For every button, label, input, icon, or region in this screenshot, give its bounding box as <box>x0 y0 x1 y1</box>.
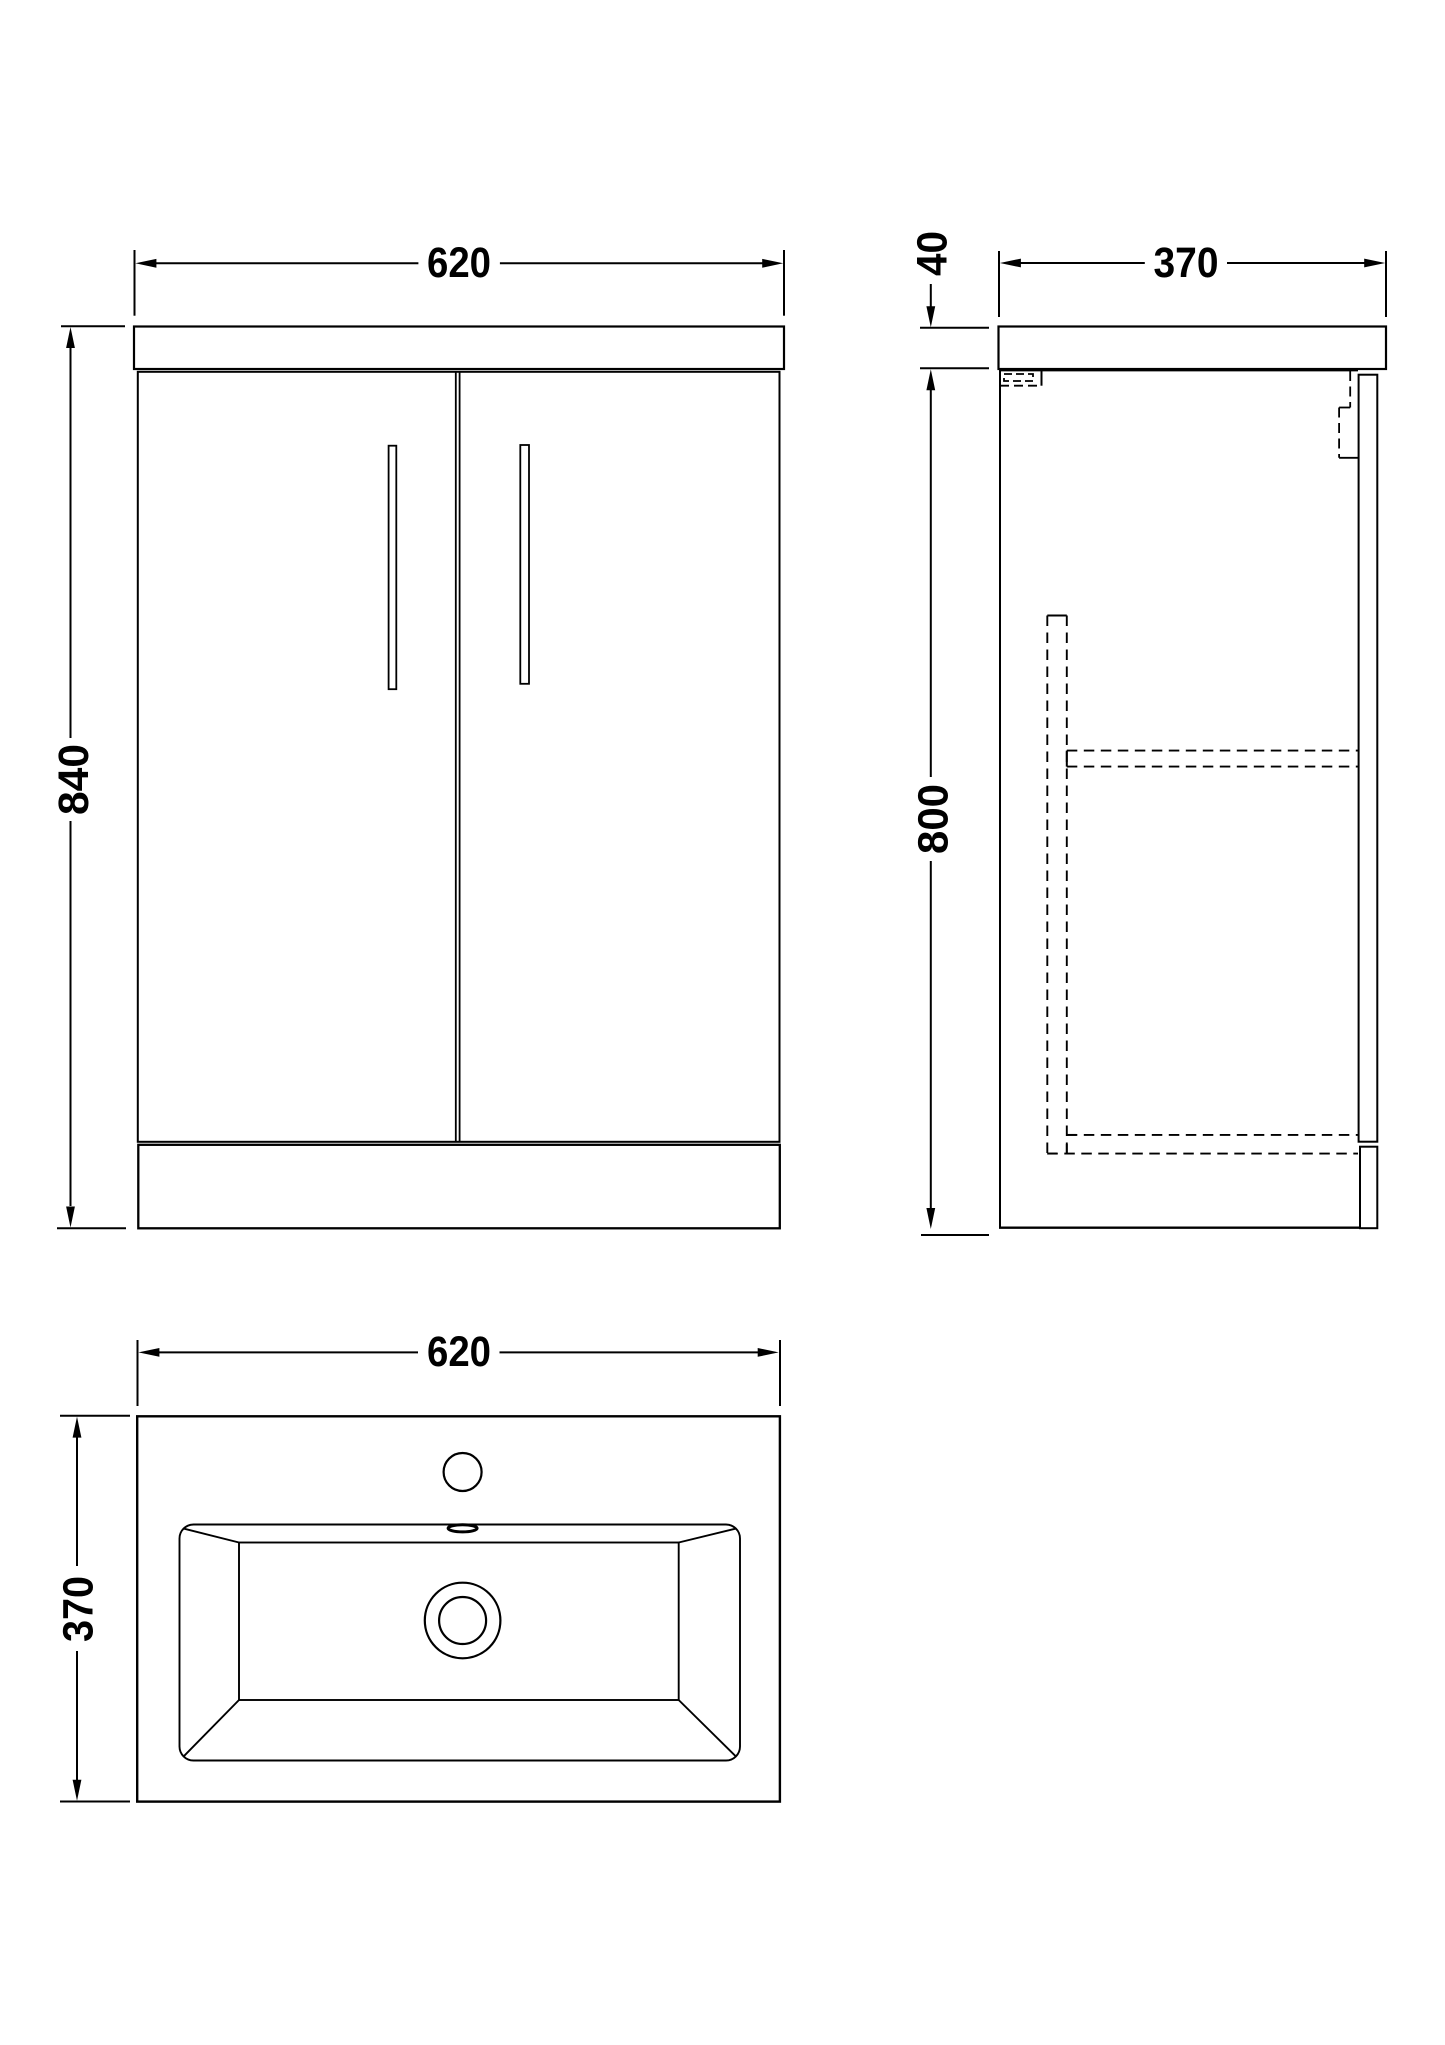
svg-text:800: 800 <box>910 784 958 854</box>
svg-text:370: 370 <box>1154 239 1219 287</box>
svg-text:370: 370 <box>55 1576 103 1642</box>
svg-text:620: 620 <box>427 239 491 287</box>
svg-text:840: 840 <box>50 744 98 815</box>
svg-text:620: 620 <box>427 1328 491 1376</box>
svg-text:40: 40 <box>909 231 957 276</box>
